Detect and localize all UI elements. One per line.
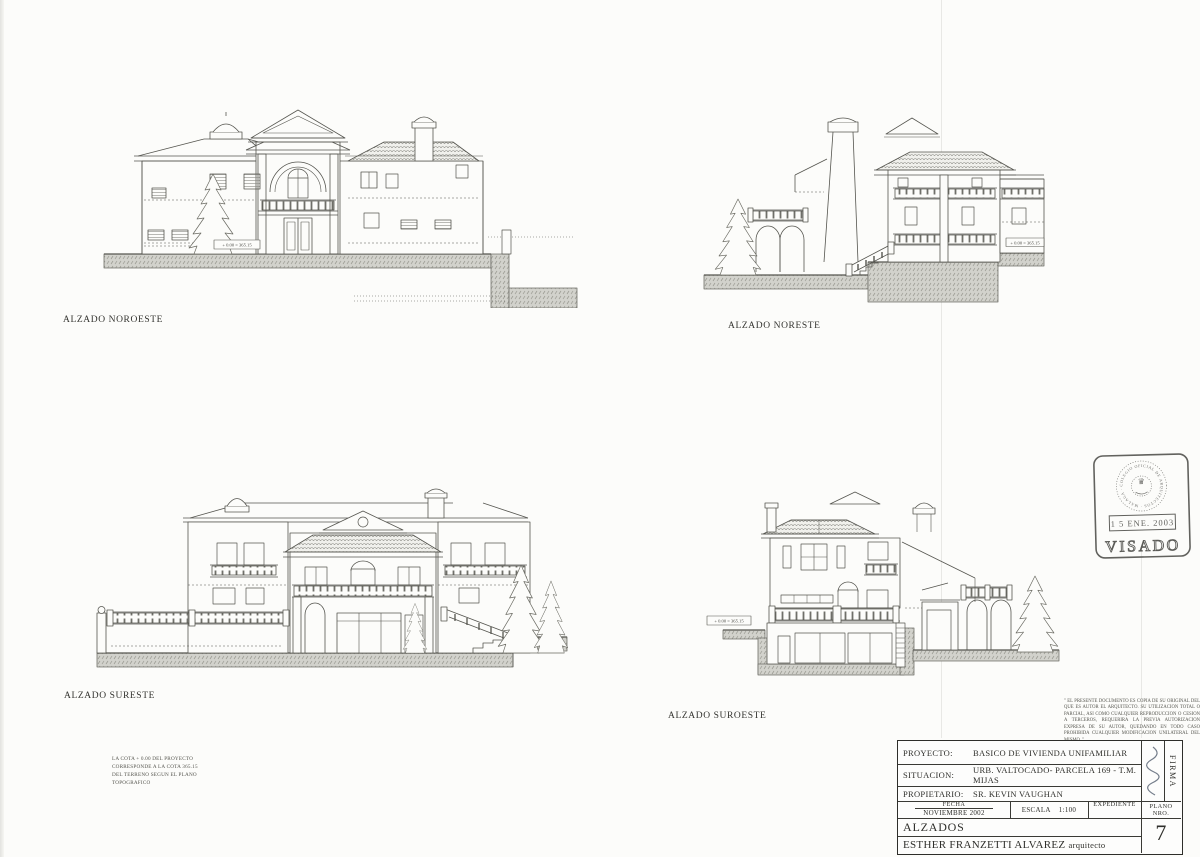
site-note-line3: DEL TERRENO SEGUN EL PLANO: [112, 771, 230, 779]
elevation-drawing-sureste: [93, 485, 571, 687]
title-block: PROYECTO: BASICO DE VIVIENDA UNIFAMILIAR…: [897, 740, 1183, 855]
plano-nro-label: PLANO NRO.: [1141, 803, 1181, 818]
svg-text:♛: ♛: [1138, 477, 1145, 486]
tb-divider: [1141, 818, 1181, 819]
signature-cell: [1141, 741, 1164, 801]
site-note-line1: LA COTA + 0.00 DEL PROYECTO: [112, 755, 230, 763]
signature-icon: [1141, 741, 1164, 801]
scan-edge-artifact: [0, 0, 4, 857]
plano-number: 7: [1141, 820, 1181, 853]
stamp-date: 1 5 ENE. 2003: [1111, 517, 1175, 529]
stamp-visado-text: VISADO: [1105, 537, 1181, 556]
tb-row-situacion: SITUACION: URB. VALTOCADO- PARCELA 169 -…: [898, 764, 1141, 786]
label-alzado-sureste: ALZADO SURESTE: [64, 691, 155, 701]
situacion-label: SITUACION:: [903, 770, 973, 780]
elevation-drawing-noreste: + 0.00 = 365.15: [700, 112, 1048, 304]
tb-cell-escala: ESCALA 1:100: [1010, 801, 1088, 818]
author-name: ESTHER FRANZETTI ALVAREZ: [903, 839, 1065, 851]
sheet-name: ALZADOS: [898, 818, 1141, 836]
proyecto-label: PROYECTO:: [903, 748, 973, 758]
tb-cell-expediente: EXPEDIENTE: [1088, 801, 1141, 818]
escala-value: 1:100: [1059, 806, 1076, 814]
site-note-line2: CORRESPONDE A LA COTA 365.15: [112, 763, 230, 771]
level-marker-sw: + 0.00 = 365.15: [714, 619, 744, 624]
level-marker-nw: + 0.00 = 365.15: [222, 243, 252, 248]
level-marker-ne: + 0.00 = 365.15: [1010, 240, 1040, 245]
site-note-line4: TOPOGRAFICO: [112, 779, 230, 787]
propietario-value: SR. KEVIN VAUGHAN: [973, 789, 1063, 799]
tb-divider: [1141, 801, 1181, 802]
firma-label: FIRMA: [1164, 741, 1181, 801]
label-alzado-noroeste: ALZADO NOROESTE: [63, 315, 163, 325]
fecha-value: NOVIEMBRE 2002: [898, 809, 1010, 817]
propietario-label: PROPIETARIO:: [903, 789, 973, 799]
fecha-label: FECHA: [915, 801, 993, 809]
author-role: arquitecto: [1069, 840, 1106, 850]
expediente-label: EXPEDIENTE: [1088, 801, 1141, 808]
proyecto-value: BASICO DE VIVIENDA UNIFAMILIAR: [973, 748, 1127, 758]
copyright-disclaimer: " EL PRESENTE DOCUMENTO ES COPIA DE SU O…: [1064, 699, 1200, 744]
visado-stamp: ♛ COLEGIO OFICIAL DE ARQUITECTOS · MALAG…: [1091, 451, 1194, 564]
tb-row-propietario: PROPIETARIO: SR. KEVIN VAUGHAN: [898, 786, 1141, 801]
stamp-emblem-icon: ♛ COLEGIO OFICIAL DE ARQUITECTOS · MALAG…: [1116, 460, 1167, 511]
tb-row-author: ESTHER FRANZETTI ALVAREZ arquitecto: [898, 836, 1141, 853]
tb-row-proyecto: PROYECTO: BASICO DE VIVIENDA UNIFAMILIAR: [898, 741, 1141, 764]
situacion-value: URB. VALTOCADO- PARCELA 169 - T.M. MIJAS: [973, 765, 1141, 785]
drawing-sheet: + 0.00 = 365.15: [0, 0, 1200, 857]
site-level-note: LA COTA + 0.00 DEL PROYECTO CORRESPONDE …: [112, 755, 230, 787]
label-alzado-suroeste: ALZADO SUROESTE: [668, 711, 766, 721]
label-alzado-noreste: ALZADO NORESTE: [728, 321, 821, 331]
escala-label: ESCALA: [1022, 806, 1051, 814]
elevation-drawing-noroeste: + 0.00 = 365.15: [98, 80, 586, 308]
tb-cell-fecha: FECHA NOVIEMBRE 2002: [898, 801, 1010, 818]
elevation-drawing-suroeste: + 0.00 = 365.15: [695, 490, 1077, 698]
